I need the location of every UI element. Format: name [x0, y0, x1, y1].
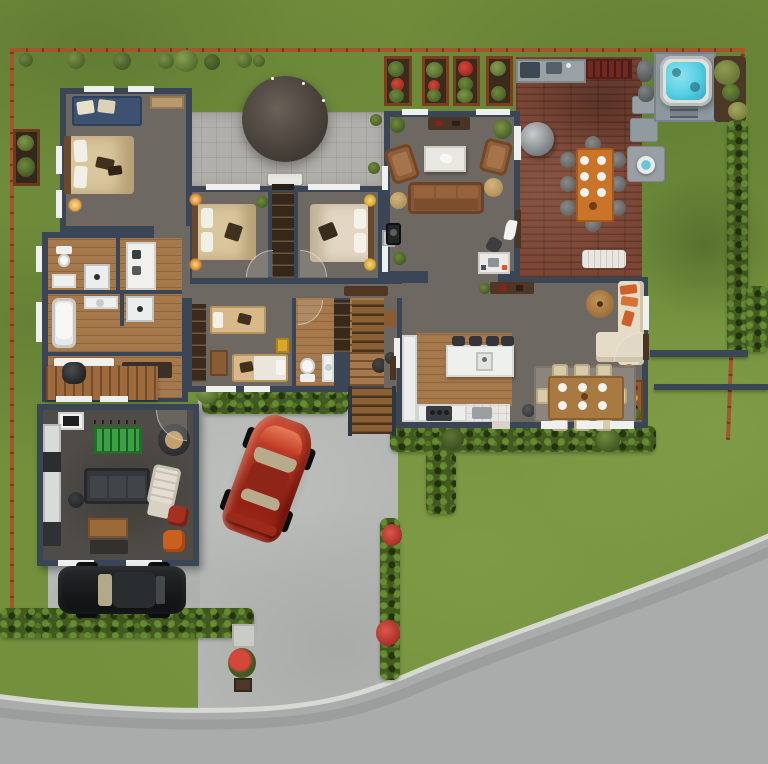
table-lamp-glow — [189, 258, 202, 271]
hedge-tree — [442, 428, 464, 450]
hedge-tree — [596, 428, 620, 452]
outdoor-dining-table — [576, 148, 614, 222]
sofa-cushion — [414, 186, 434, 198]
kids-wardrobe — [192, 304, 206, 382]
bench-pillow — [76, 100, 95, 115]
plant-on-stand — [493, 119, 512, 139]
plate — [597, 156, 606, 165]
fence-shrub — [236, 52, 252, 68]
sofa-seat — [414, 199, 478, 210]
shrub — [728, 102, 748, 120]
washer-dial — [132, 250, 141, 259]
fence-shrub — [158, 53, 174, 69]
desk-item-orange — [502, 265, 507, 270]
plate — [597, 188, 606, 197]
window — [36, 246, 42, 272]
bed-pillow — [201, 208, 213, 228]
bed-plant — [426, 62, 443, 78]
plant — [256, 196, 268, 208]
bed-plant — [427, 89, 441, 102]
plate — [580, 188, 589, 197]
bar-stool — [501, 336, 514, 346]
bed-plant — [388, 61, 404, 77]
east-window — [643, 296, 649, 330]
plate — [598, 383, 607, 392]
courtyard-shrub — [368, 162, 380, 174]
stair-closet — [334, 300, 350, 352]
orange-pouf — [163, 530, 185, 552]
plate — [558, 401, 567, 410]
headboard — [64, 136, 71, 194]
kitchen-mat — [472, 407, 492, 419]
serving-bowl — [589, 202, 597, 210]
hedge-spur — [426, 450, 456, 514]
dark-rug — [90, 540, 128, 554]
dark-pouf — [68, 492, 84, 508]
fence-bush-large — [174, 50, 198, 72]
basin — [96, 299, 104, 307]
window — [100, 396, 128, 402]
trash-pad — [232, 624, 256, 648]
hot-tub — [660, 56, 712, 106]
table-lamp-glow — [68, 122, 82, 136]
fence-shrub — [204, 54, 220, 70]
plate — [598, 401, 607, 410]
left-planter-box — [13, 129, 40, 186]
kitchen-island — [446, 345, 514, 377]
planter-plant — [17, 157, 35, 177]
kitchenette-stove — [43, 452, 61, 472]
garden-wall-upper — [650, 350, 748, 357]
desk — [478, 252, 510, 274]
bath-wall — [116, 238, 120, 294]
canopy-light — [271, 77, 274, 80]
decor — [452, 121, 460, 126]
bed-pillow — [276, 360, 285, 375]
window — [610, 421, 634, 429]
sofa-cushion — [458, 186, 478, 198]
plate — [578, 401, 587, 410]
shower-drain — [137, 306, 143, 312]
round-canopy — [242, 76, 328, 162]
coffee-table — [424, 146, 466, 172]
bed-flower-red — [458, 61, 473, 76]
car-windshield — [98, 574, 112, 606]
chair-cushion — [391, 151, 413, 177]
kitchenette-fridge — [43, 522, 61, 546]
master-bed — [64, 134, 134, 196]
bed-pillow — [354, 233, 366, 253]
plate — [580, 172, 589, 181]
sb-toilet-bowl — [300, 358, 315, 374]
range — [426, 406, 452, 421]
kids-bed-a — [210, 306, 266, 334]
window — [476, 109, 510, 115]
round-coffee-table — [586, 290, 614, 318]
raised-bed-1 — [384, 56, 412, 106]
window — [244, 386, 270, 392]
laptop — [488, 258, 499, 267]
bedroom3-bed — [308, 202, 374, 264]
garden-wall-lower — [654, 384, 768, 390]
canopy-light — [302, 82, 305, 85]
headboard — [368, 204, 374, 262]
boulder — [638, 85, 654, 102]
outdoor-kitchen-counter — [516, 59, 586, 83]
tree-shadow — [630, 170, 768, 320]
window — [402, 109, 428, 115]
decor-red — [436, 121, 442, 126]
door-dark — [272, 184, 294, 190]
tv-unit — [58, 412, 84, 430]
bbq-grill — [62, 362, 86, 384]
shared-wardrobe — [272, 192, 294, 278]
bed-pillow — [213, 312, 223, 328]
island-faucet — [482, 357, 487, 362]
counter-west — [402, 335, 417, 422]
bedroom2-bed — [192, 202, 256, 262]
washer — [126, 242, 156, 290]
bench-pillow — [97, 99, 115, 114]
bathtub — [52, 298, 76, 348]
table-decor — [439, 152, 453, 165]
table-lamp-glow — [189, 193, 202, 206]
outdoor-cooktop — [546, 62, 562, 74]
shower-1 — [84, 264, 110, 290]
outdoor-chair — [560, 176, 576, 192]
outdoor-sink-unit — [520, 62, 540, 78]
shower-drain — [94, 274, 100, 280]
fire-bowl — [637, 156, 655, 174]
plate — [558, 383, 567, 392]
bar-stool — [469, 336, 482, 346]
fence-shrub — [253, 55, 265, 67]
bed-plant — [490, 61, 506, 76]
plate — [580, 156, 589, 165]
step-rail — [392, 386, 396, 436]
porch-bench — [384, 310, 396, 327]
planter-plant — [17, 135, 34, 151]
sb-vanity — [322, 354, 334, 382]
bed-plant — [457, 89, 473, 103]
raised-bed-4 — [486, 56, 513, 106]
grill-counter — [586, 59, 632, 79]
sofa-cushion — [90, 476, 107, 498]
centerpiece — [581, 393, 588, 400]
window-curtained — [514, 126, 521, 160]
throw-pillow-dark — [107, 165, 122, 176]
shrub — [722, 84, 740, 101]
bar-stool — [486, 336, 499, 346]
kids-bed-b — [232, 354, 288, 382]
foosball-handles — [94, 420, 142, 460]
window — [56, 396, 92, 402]
vanity-sink — [84, 296, 118, 309]
decor — [516, 285, 523, 291]
burner — [444, 410, 449, 415]
tub-seat — [690, 82, 700, 92]
washer-dial — [132, 266, 141, 275]
raised-bed-2 — [422, 56, 449, 106]
bed-plant — [491, 86, 506, 101]
flower-bush — [228, 648, 256, 678]
white-lounger — [582, 250, 626, 268]
window — [36, 302, 42, 342]
black-car — [58, 562, 186, 618]
game-coffee-table — [88, 518, 128, 538]
window — [382, 166, 388, 190]
fence-shrub — [67, 51, 85, 69]
bed-pillow — [73, 166, 88, 189]
toilet-bowl — [58, 254, 70, 267]
lamp-yellow — [364, 258, 376, 271]
plant — [390, 117, 405, 133]
window — [308, 184, 360, 190]
red-pouf — [166, 504, 189, 527]
stove-top — [390, 229, 397, 236]
window — [382, 246, 388, 272]
courtyard-shrub — [370, 114, 382, 126]
chair-cushion — [486, 144, 507, 169]
car-roof — [112, 572, 156, 608]
small-planter — [234, 678, 252, 692]
window — [206, 386, 236, 392]
master-blue-bench — [72, 96, 142, 126]
game-sofa — [84, 468, 150, 504]
exterior-wood-steps — [352, 388, 392, 434]
kettle-smoker — [520, 122, 554, 156]
bath-wall — [48, 290, 182, 294]
shower-2 — [126, 296, 154, 322]
window — [56, 190, 62, 218]
plate — [578, 383, 587, 392]
outdoor-chair — [560, 152, 576, 168]
kids-desk — [210, 350, 228, 376]
table-lamp-glow — [68, 198, 82, 212]
east-door — [643, 334, 649, 360]
flower-cluster-red — [382, 524, 402, 546]
living-sofa — [408, 182, 484, 214]
outdoor-chair — [560, 200, 576, 216]
window — [577, 421, 603, 429]
plate — [597, 172, 606, 181]
burner — [437, 410, 442, 415]
bed-pillow — [73, 140, 88, 163]
window — [56, 146, 62, 174]
tub-seat — [672, 68, 681, 77]
window — [84, 86, 114, 92]
faucet — [566, 63, 571, 68]
toilet — [56, 246, 72, 254]
stair-exit-door — [390, 356, 396, 380]
bed-pillow — [201, 232, 213, 252]
raised-bed-3 — [453, 56, 480, 106]
flower-cluster-red — [376, 620, 400, 646]
tub-basin — [56, 303, 72, 339]
stove-unit — [386, 223, 401, 245]
table-stem — [597, 301, 603, 307]
tv-screen — [63, 416, 79, 426]
decor-red — [500, 285, 506, 291]
car-rear-glass — [156, 576, 165, 604]
master-dresser — [150, 96, 184, 109]
pouf-tan — [390, 192, 407, 209]
plant — [393, 252, 406, 265]
site-plan-scene — [0, 0, 768, 764]
corridor-console — [344, 286, 388, 296]
fence-shrub — [19, 53, 33, 67]
fence-shrub — [113, 52, 131, 70]
media-sideboard — [428, 117, 470, 130]
plant — [479, 283, 490, 294]
tree-olive — [714, 60, 740, 85]
pouf-tan — [484, 178, 503, 197]
desk-item-blue — [481, 265, 486, 270]
sofa-cushion — [436, 186, 456, 198]
dining-table — [548, 376, 624, 420]
kitchen-door-south — [492, 421, 510, 429]
window — [541, 421, 567, 429]
south-console — [490, 282, 534, 294]
lamp-yellow — [364, 194, 376, 207]
sofa-cushion — [109, 476, 126, 498]
window — [128, 86, 154, 92]
canopy-light — [322, 99, 325, 102]
window — [206, 184, 260, 190]
bath-wall — [120, 294, 124, 326]
bath-sink — [52, 274, 76, 288]
burner — [430, 410, 435, 415]
sb-toilet-tank — [300, 374, 315, 382]
basin — [325, 364, 332, 371]
sofa-cushion — [128, 476, 145, 498]
bar-stool — [452, 336, 465, 346]
hot-tub-water — [666, 62, 706, 100]
kids-wall-art-yellow — [276, 338, 289, 353]
bed-plant — [389, 89, 404, 103]
boulder — [637, 60, 653, 82]
bed-pillow — [354, 209, 366, 229]
